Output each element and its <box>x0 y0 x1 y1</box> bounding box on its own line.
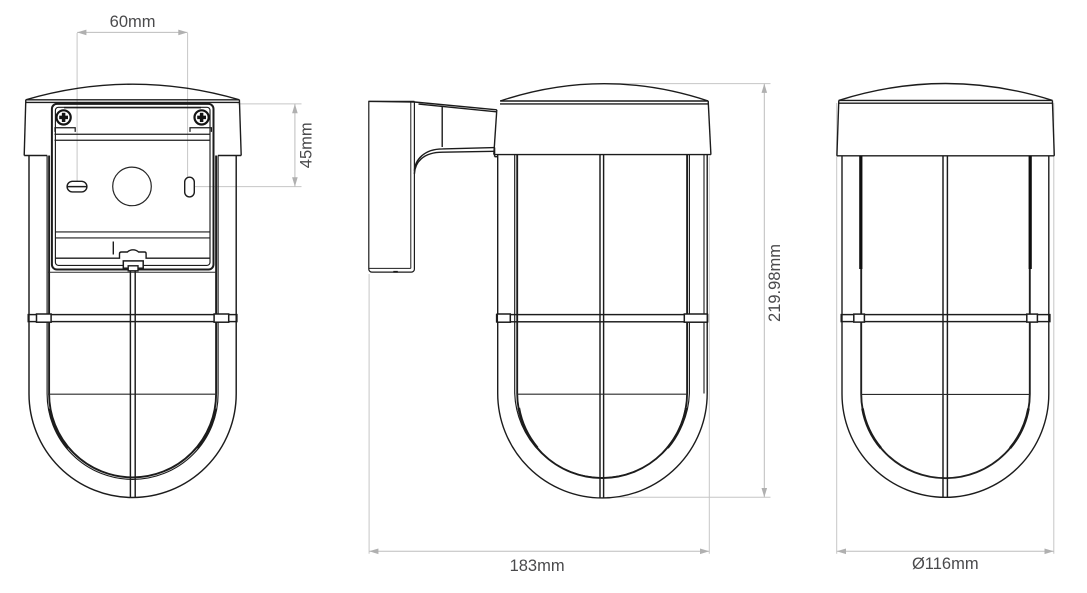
svg-text:60mm: 60mm <box>110 13 156 31</box>
svg-text:45mm: 45mm <box>298 122 316 168</box>
svg-text:219.98mm: 219.98mm <box>766 244 784 322</box>
svg-text:Ø116mm: Ø116mm <box>912 555 979 573</box>
svg-text:183mm: 183mm <box>510 557 565 575</box>
